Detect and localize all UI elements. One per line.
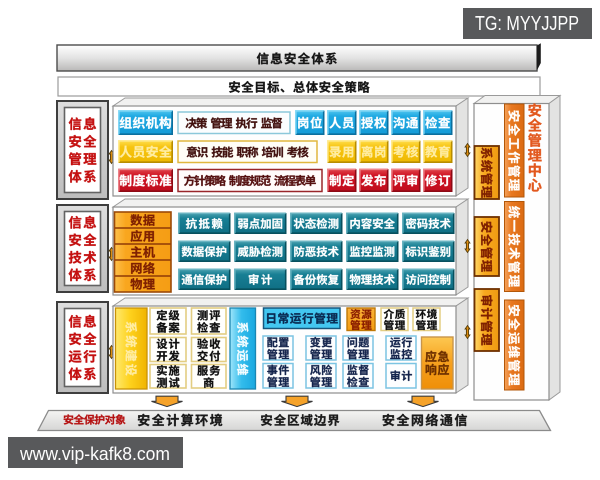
svg-text:TG: MYYJJPP: TG: MYYJJPP — [475, 13, 579, 35]
svg-text:www.vip-kafk8.com: www.vip-kafk8.com — [19, 443, 170, 464]
